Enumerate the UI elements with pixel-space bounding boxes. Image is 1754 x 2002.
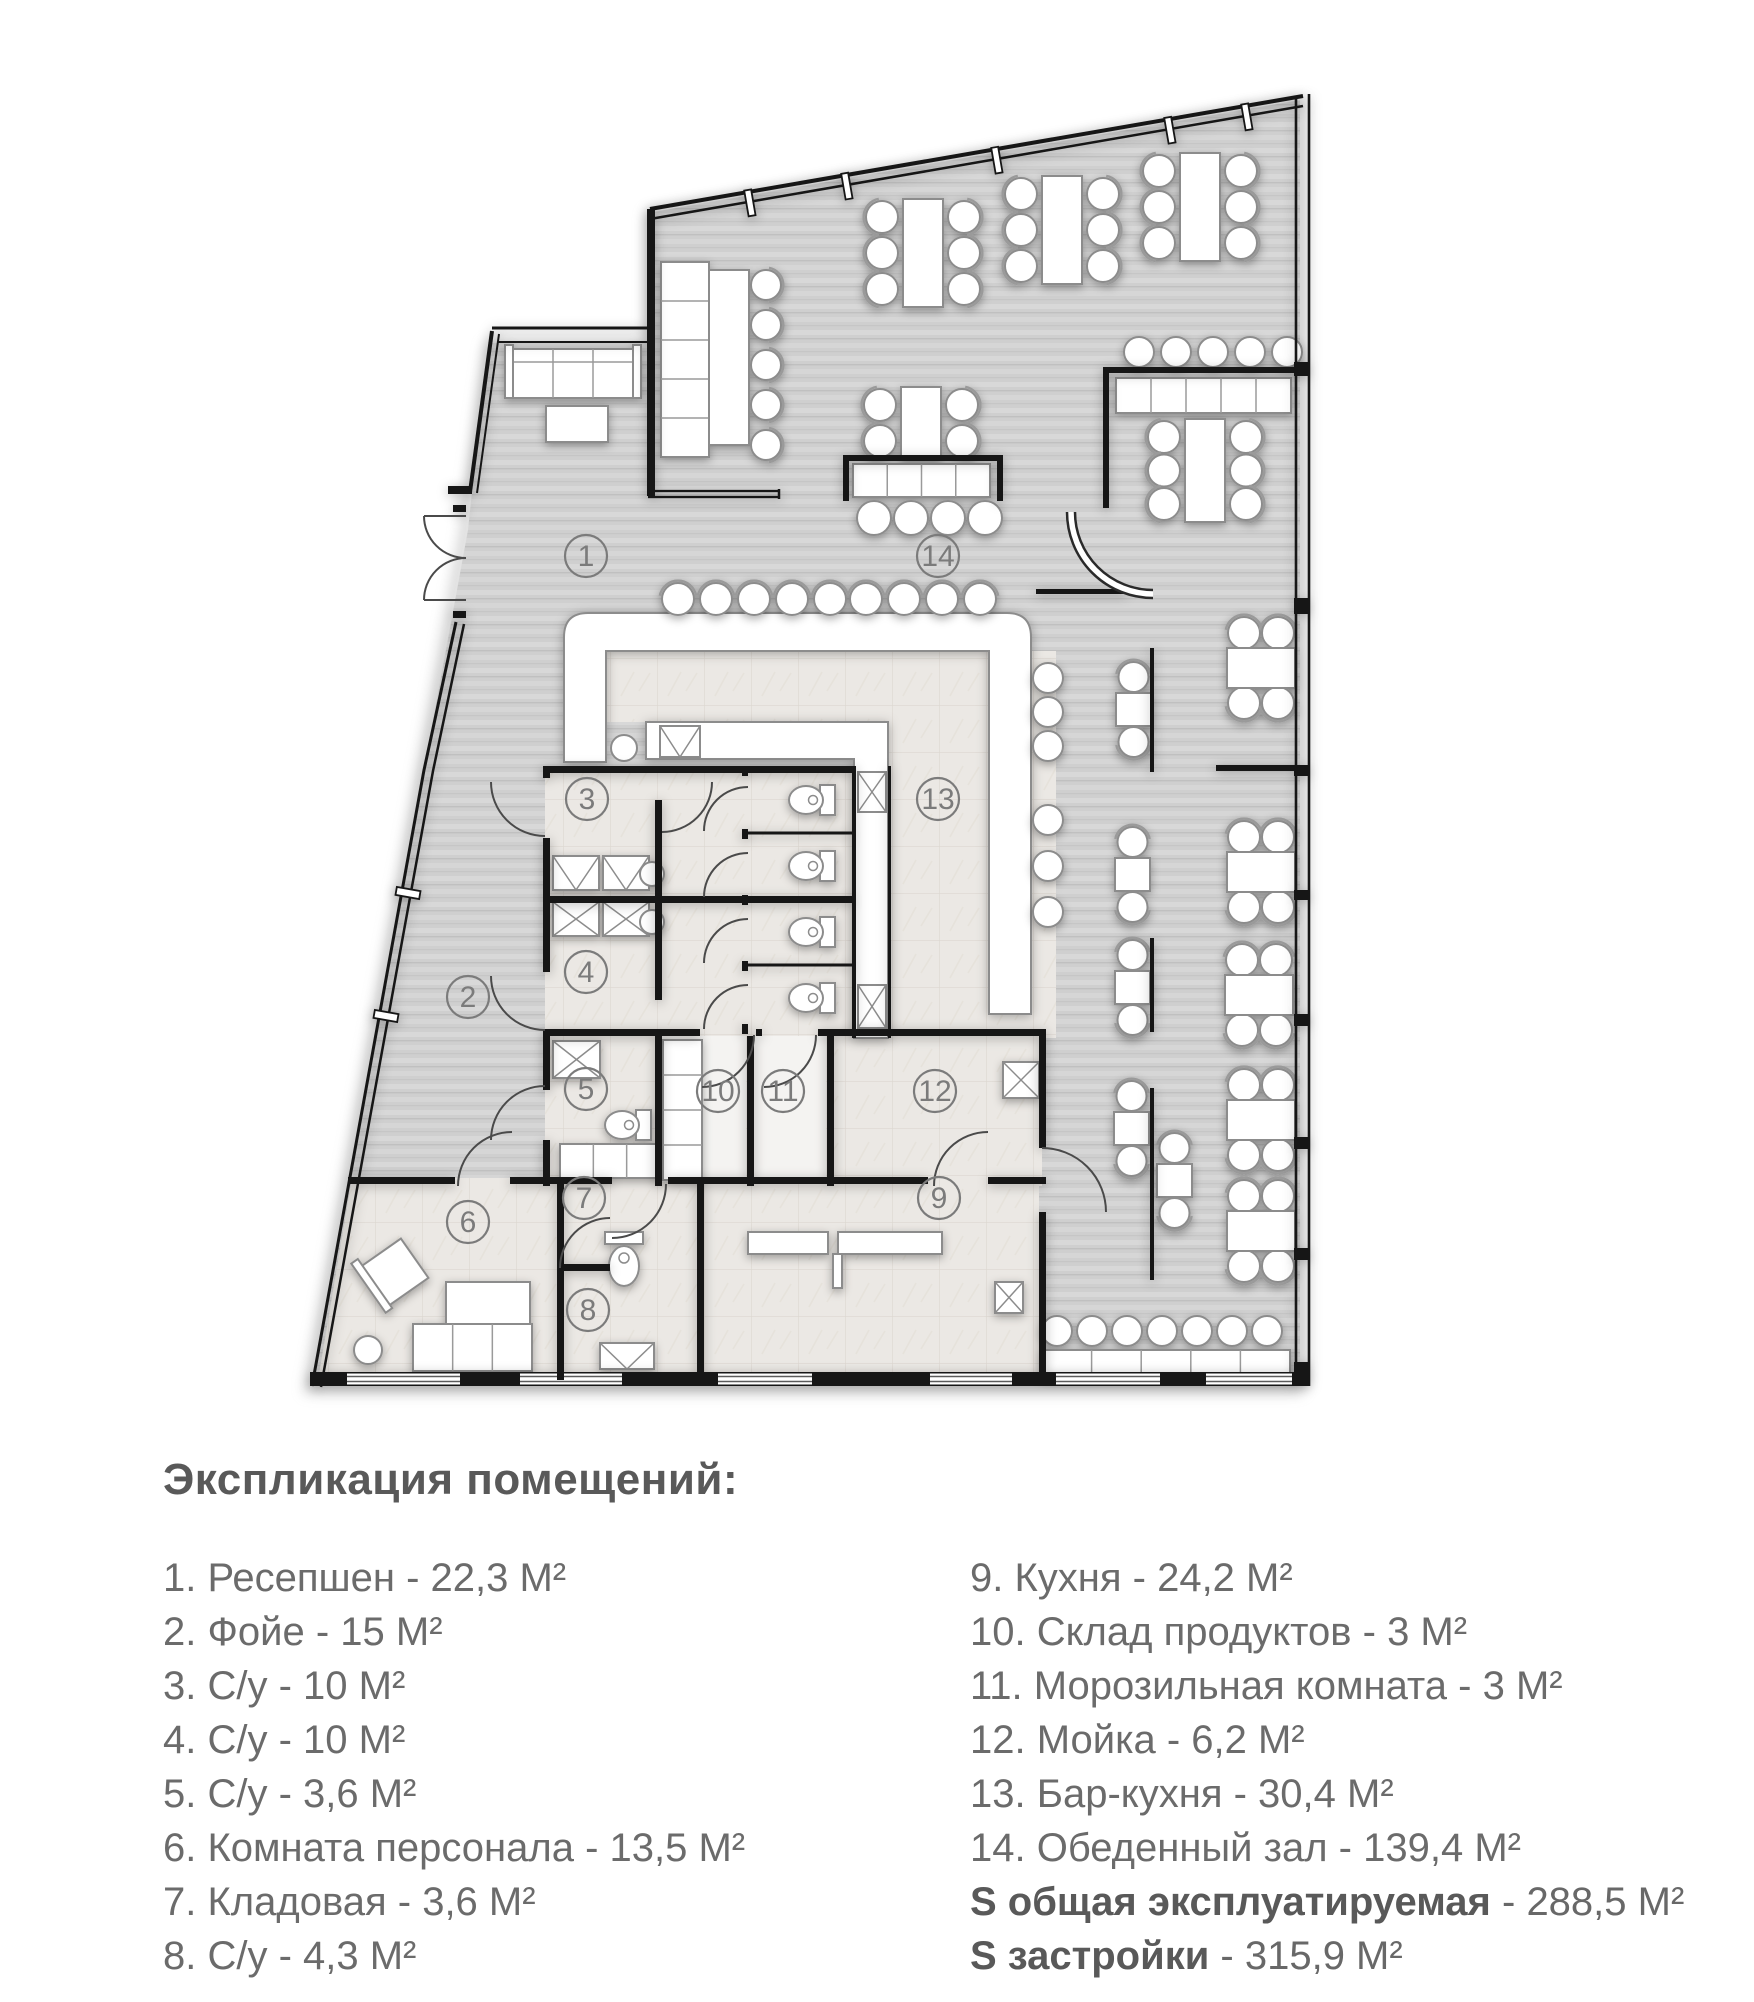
svg-text:2: 2 (460, 981, 477, 1014)
svg-text:13: 13 (921, 783, 954, 816)
svg-text:10. Склад продуктов - 3 М²: 10. Склад продуктов - 3 М² (970, 1610, 1467, 1654)
svg-text:6. Комната персонала - 13,5 М²: 6. Комната персонала - 13,5 М² (163, 1826, 745, 1870)
svg-text:1. Ресепшен - 22,3 М²: 1. Ресепшен - 22,3 М² (163, 1556, 566, 1600)
svg-text:7: 7 (576, 1182, 593, 1215)
svg-text:5. С/у - 3,6 М²: 5. С/у - 3,6 М² (163, 1772, 416, 1816)
svg-text:12: 12 (918, 1075, 951, 1108)
svg-text:S застройки - 315,9 М²: S застройки - 315,9 М² (970, 1934, 1403, 1978)
svg-text:3. С/у - 10 М²: 3. С/у - 10 М² (163, 1664, 405, 1708)
svg-text:11: 11 (767, 1075, 798, 1108)
svg-text:S общая эксплуатируемая - 288,: S общая эксплуатируемая - 288,5 М² (970, 1880, 1684, 1924)
svg-text:14. Обеденный зал - 139,4 М²: 14. Обеденный зал - 139,4 М² (970, 1826, 1521, 1870)
svg-text:8. С/у - 4,3 М²: 8. С/у - 4,3 М² (163, 1934, 416, 1978)
svg-text:2. Фойе - 15 М²: 2. Фойе - 15 М² (163, 1610, 443, 1654)
svg-text:9: 9 (931, 1182, 948, 1215)
svg-text:1: 1 (578, 540, 595, 573)
svg-text:9. Кухня - 24,2 М²: 9. Кухня - 24,2 М² (970, 1556, 1293, 1600)
svg-text:13. Бар-кухня - 30,4 М²: 13. Бар-кухня - 30,4 М² (970, 1772, 1394, 1816)
svg-text:4. С/у - 10 М²: 4. С/у - 10 М² (163, 1718, 405, 1762)
svg-text:12. Мойка - 6,2 М²: 12. Мойка - 6,2 М² (970, 1718, 1305, 1762)
svg-text:7. Кладовая - 3,6 М²: 7. Кладовая - 3,6 М² (163, 1880, 536, 1924)
svg-text:10: 10 (701, 1075, 734, 1108)
svg-text:14: 14 (921, 540, 954, 573)
svg-text:11. Морозильная комната - 3 М²: 11. Морозильная комната - 3 М² (970, 1664, 1563, 1708)
svg-text:Экспликация помещений:: Экспликация помещений: (163, 1455, 738, 1504)
svg-text:3: 3 (579, 783, 596, 816)
svg-text:8: 8 (580, 1294, 597, 1327)
svg-text:5: 5 (578, 1073, 595, 1106)
svg-text:4: 4 (578, 956, 595, 989)
svg-text:6: 6 (460, 1206, 477, 1239)
